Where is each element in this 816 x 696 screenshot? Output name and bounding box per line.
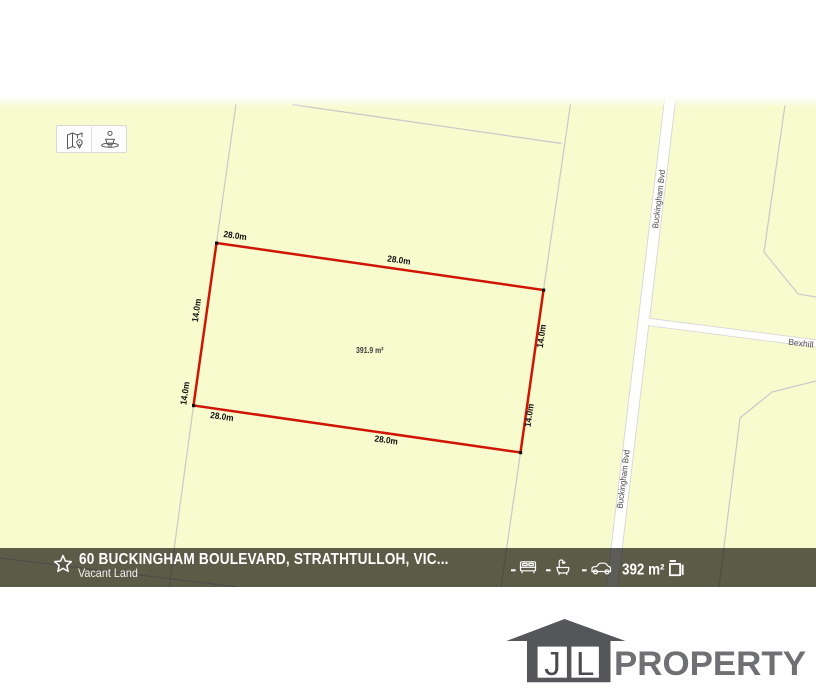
svg-text:392 m²: 392 m² — [622, 562, 665, 579]
svg-text:L: L — [576, 645, 594, 682]
svg-text:J: J — [544, 645, 561, 682]
svg-text:PROPERTY: PROPERTY — [614, 645, 806, 683]
svg-text:391.9 m²: 391.9 m² — [356, 345, 384, 355]
